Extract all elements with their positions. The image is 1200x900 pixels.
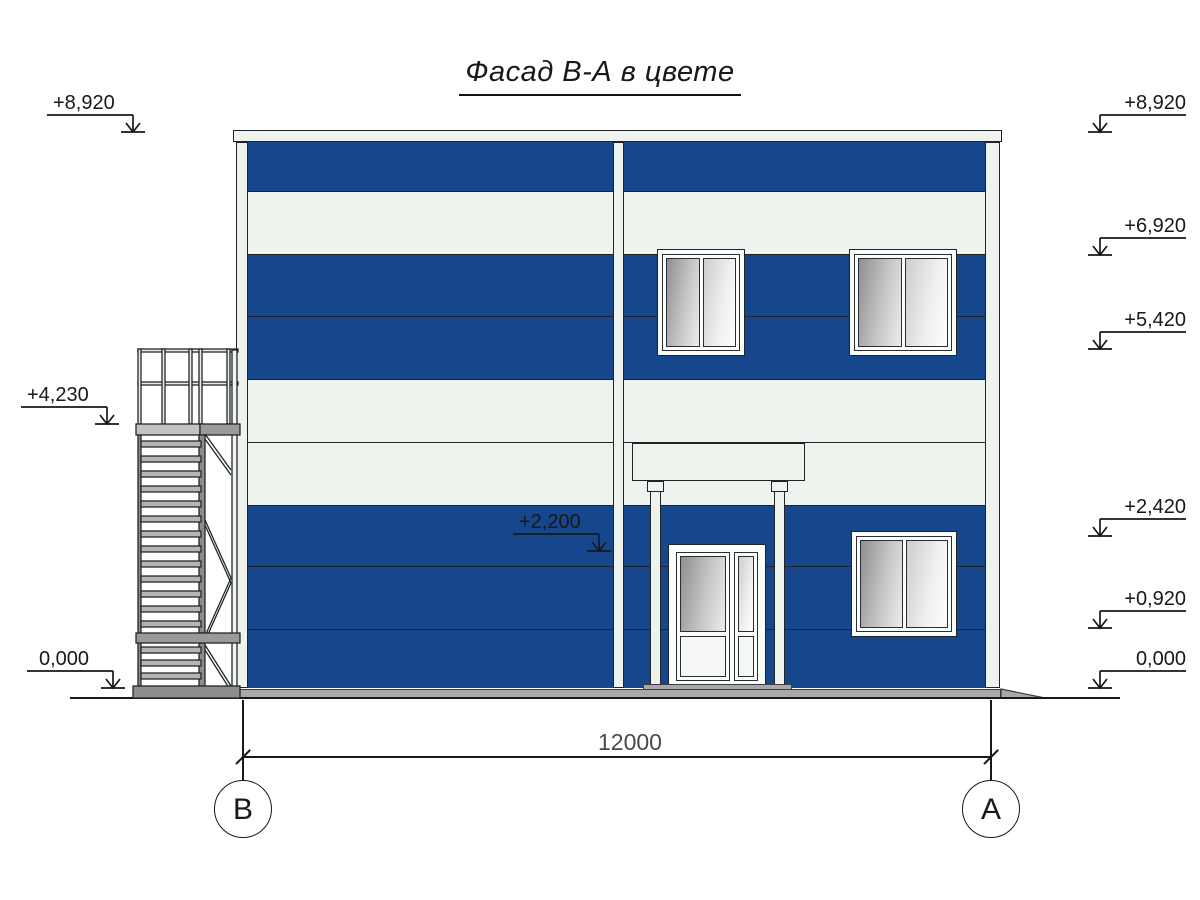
elevation-marker-right-8920: +8,920 [1088, 89, 1188, 137]
pilaster-right [985, 142, 1000, 688]
door-glazing [680, 556, 726, 632]
elevation-marker-right-0920: +0,920 [1088, 585, 1188, 633]
panel-stripe [624, 142, 985, 192]
svg-text:+5,420: +5,420 [1124, 309, 1186, 331]
panel-stripe [624, 380, 985, 443]
svg-text:+4,230: +4,230 [27, 384, 89, 406]
elevation-marker-middle-2200: +2,200 [511, 508, 611, 556]
elevation-marker-right-2420: +2,420 [1088, 493, 1188, 541]
dimension-value: 12000 [555, 729, 705, 756]
dimension-line [243, 756, 991, 758]
window-pane [906, 540, 949, 628]
facade-left-half [248, 142, 613, 688]
window-pane [905, 258, 949, 347]
stair-truss-diagonals [205, 434, 231, 691]
stair-railing [138, 349, 238, 424]
elevation-marker-left-4230: +4,230 [19, 381, 119, 429]
canopy-post-right [774, 481, 785, 687]
stair-landing [136, 424, 240, 435]
canopy-post-left [650, 481, 661, 687]
window-frame [854, 254, 952, 351]
elevation-marker-right-6920: +6,920 [1088, 212, 1188, 260]
drawing-title: Фасад В-А в цвете [459, 56, 740, 96]
door-glazing [738, 556, 754, 632]
entrance-canopy [632, 443, 805, 481]
elevation-marker-right-0000: 0,000 [1088, 645, 1188, 693]
drawing-title-wrap: Фасад В-А в цвете [0, 56, 1200, 96]
window-lower-right [851, 531, 957, 637]
svg-text:+0,920: +0,920 [1124, 588, 1186, 610]
door-leaf [676, 552, 730, 681]
canopy-post-cap-left [647, 481, 664, 492]
facade-drawing-sheet: Фасад В-А в цвете [0, 0, 1200, 900]
stair-lower-flight [133, 633, 240, 698]
panel-stripe [248, 142, 613, 192]
elevation-marker-right-5420: +5,420 [1088, 306, 1188, 354]
fire-escape-stairs [130, 345, 250, 700]
window-frame [856, 536, 952, 632]
panel-stripe [248, 317, 613, 380]
svg-text:+2,200: +2,200 [519, 511, 581, 533]
window-pane [666, 258, 700, 347]
extension-line-axis-a [990, 700, 992, 780]
panel-stripe [624, 192, 985, 255]
svg-text:+2,420: +2,420 [1124, 496, 1186, 518]
parapet-cap [233, 130, 1002, 142]
panel-stripe [248, 192, 613, 255]
svg-text:0,000: 0,000 [39, 648, 89, 670]
door-bottom-panel [738, 636, 754, 677]
pilaster-middle [613, 142, 624, 688]
window-upper-right [849, 249, 957, 356]
panel-stripe [248, 630, 613, 688]
elevation-marker-left-8920: +8,920 [45, 89, 145, 137]
svg-text:+6,920: +6,920 [1124, 215, 1186, 237]
svg-text:0,000: 0,000 [1136, 648, 1186, 670]
elevation-marker-left-0000: 0,000 [25, 645, 125, 693]
panel-stripe [248, 567, 613, 630]
extension-line-axis-b [242, 700, 244, 780]
panel-stripe [248, 443, 613, 506]
panel-stripe [248, 255, 613, 317]
axis-circle-b: В [214, 780, 272, 838]
window-upper-left [657, 249, 745, 356]
stair-steps [141, 441, 201, 627]
panel-stripe [248, 380, 613, 443]
door-bottom-panel [680, 636, 726, 677]
window-pane [858, 258, 902, 347]
axis-circle-a: А [962, 780, 1020, 838]
canopy-post-cap-right [771, 481, 788, 492]
svg-text:+8,920: +8,920 [53, 92, 115, 114]
window-pane [860, 540, 903, 628]
svg-text:+8,920: +8,920 [1124, 92, 1186, 114]
window-frame [662, 254, 740, 351]
window-pane [703, 258, 737, 347]
door-sidelight [734, 552, 758, 681]
entrance-door [668, 544, 766, 687]
